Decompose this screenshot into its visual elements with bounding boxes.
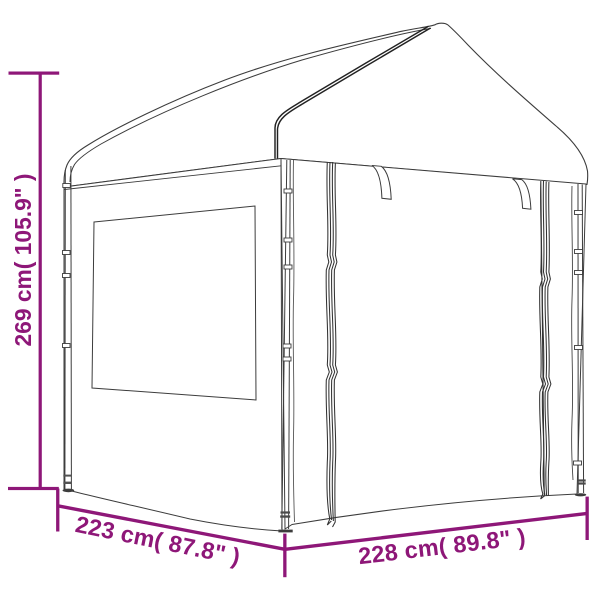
svg-text:269 cm( 105.9" ): 269 cm( 105.9" ) — [10, 173, 36, 346]
